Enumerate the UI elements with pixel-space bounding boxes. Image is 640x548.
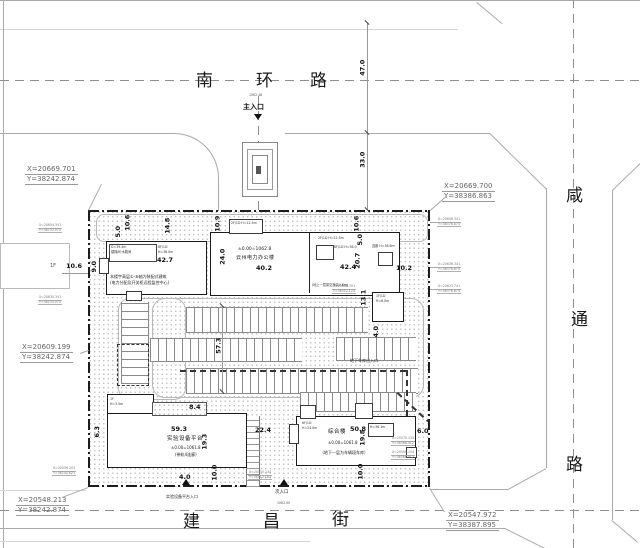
- dim-59-3: 59.3: [171, 426, 187, 433]
- site-plan-drawing: 1F 南 环 路 建 昌 街 咸 通 路 X=20669.7: [0, 0, 640, 548]
- platform-entrance-label: 实验设备平台入口: [166, 495, 198, 500]
- gate-house-glyph: [256, 166, 261, 174]
- basement-outline-h: [180, 370, 408, 372]
- coordinate-y: Y=38313.184: [248, 476, 272, 481]
- secondary-entrance-arrow: [280, 479, 288, 485]
- coordinate-bottom-left: X=20548.213 Y=38242.874: [16, 496, 69, 516]
- complex-protrusion-2: [355, 403, 373, 419]
- coordinate-x: X=20669.701: [25, 165, 78, 175]
- dim-13-1: 13.1: [360, 290, 367, 306]
- coordinate-y: Y=38242.874: [25, 175, 78, 185]
- coordinate-x: X=20669.700: [442, 182, 495, 192]
- coordinate-y: Y=38368.412: [391, 442, 415, 447]
- main-entrance-arrow: [254, 114, 262, 120]
- south-road-char-3: 街: [332, 510, 349, 530]
- office-building-name: 云州电力办公楼: [236, 256, 275, 262]
- west-tag-line2: 楼梯间·水箱间: [111, 251, 131, 255]
- north-east-corner-chamfer: [476, 2, 502, 24]
- micro-coordinate: X=20630.341Y=38233.074: [38, 296, 62, 305]
- east-block-chamfer-bottom: [611, 520, 638, 543]
- west-note-line1: 本楼宇高层①-⑧轴为装配式建筑: [110, 275, 167, 280]
- parking-row-1: [186, 307, 368, 333]
- dim-20-7: 20.7: [354, 253, 361, 269]
- south-block-edge: [0, 541, 310, 542]
- dim-4-0-bottom: 4.0: [179, 474, 191, 481]
- complex-roof-label: H=36.1m: [370, 426, 385, 430]
- dim-8-4: 8.4: [189, 404, 201, 411]
- dim-9-0: 9.0: [91, 261, 98, 273]
- adjacent-building-label: 1F: [50, 264, 56, 270]
- coordinate-y: Y=38387.895: [446, 521, 499, 531]
- east-block-chamfer-top: [612, 163, 640, 191]
- coordinate-x: X=20547.972: [446, 511, 499, 521]
- north-road-char-2: 环: [256, 71, 273, 91]
- micro-coordinate: X=20555.134Y=38313.184: [248, 471, 272, 480]
- micro-coordinate: X=20623.741Y=38376.874: [437, 285, 461, 294]
- dim-5-0-left: 5.0: [115, 226, 122, 238]
- block-corner-chamfer-se: [508, 468, 546, 490]
- adjacent-building-west: [0, 243, 70, 289]
- dim-33-0: 33.0: [359, 152, 366, 168]
- main-office-building: [210, 232, 400, 296]
- west-note-line2: (电力分配及开关柜远程监控中心): [110, 281, 169, 286]
- office-elevation: ±0.00=1062.8: [238, 247, 271, 252]
- coordinate-y: Y=38242.874: [20, 353, 73, 363]
- coordinate-y: Y=38368.412: [391, 456, 415, 461]
- site-boundary-top: [88, 210, 430, 212]
- west-building-notch-bottom: [126, 291, 142, 301]
- dim-line-47-33: [367, 23, 368, 210]
- basement-outline-v: [406, 370, 408, 418]
- platform-elevation: ±0.00=1061.8: [171, 446, 201, 451]
- dim-40-2: 40.2: [256, 265, 272, 272]
- dim-42-7: 42.7: [157, 257, 173, 264]
- south-road-north-curb-west: [0, 490, 86, 491]
- dim-10-0-complex: 10.0: [357, 464, 364, 480]
- south-road-char-2: 昌: [263, 512, 280, 532]
- site-boundary-left: [88, 210, 90, 487]
- office-roof-label: 2F/1D H=12.5m: [231, 222, 257, 226]
- kiosk-label2: H=6.0m: [376, 300, 389, 304]
- micro-coordinate: X=20654.341Y=38233.074: [38, 224, 62, 233]
- complex-building-name: 综合楼: [328, 429, 346, 435]
- platform-floor2: H=3.5m: [110, 403, 123, 407]
- complex-protrusion-1: [300, 405, 316, 419]
- coordinate-top-right: X=20669.700 Y=38386.863: [442, 182, 495, 202]
- platform-building-name: 实验设备平台: [167, 436, 203, 442]
- coordinate-y: Y=38376.874: [437, 223, 461, 228]
- south-road-north-curb: [430, 489, 508, 490]
- site-boundary-right: [428, 210, 430, 487]
- micro-coordinate: X=20636.341Y=38376.874: [437, 263, 461, 272]
- micro-coordinate: X=20556.134Y=38368.412: [391, 451, 415, 460]
- north-block-curb: [285, 133, 490, 134]
- coordinate-y: Y=38242.874: [16, 506, 69, 516]
- dim-22-4: 22.4: [255, 427, 271, 434]
- corridor-box: [378, 252, 393, 266]
- dim-10-6-left: 10.6: [124, 215, 131, 231]
- south-road-south-curb: [0, 528, 505, 529]
- coordinate-bottom-right: X=20547.972 Y=38387.895: [446, 511, 499, 531]
- complex-protrusion-left: [289, 424, 299, 444]
- coordinate-y: Y=38233.074: [38, 301, 62, 306]
- office-roof-label2: 2F/1D H=12.5m: [318, 237, 344, 241]
- complex-elevation: ±0.00=1061.8: [328, 441, 358, 446]
- office-internal-wall: [309, 233, 310, 293]
- coordinate-y: Y=38376.874: [437, 268, 461, 273]
- east-road-char-2: 通: [571, 310, 588, 330]
- east-road-east-curb: [612, 190, 613, 520]
- west-floor-label2: H=36.0m: [158, 251, 173, 255]
- north-road-char-1: 南: [196, 71, 213, 91]
- micro-coordinate: X=20570.134Y=38368.412: [391, 437, 415, 446]
- corridor-label: 连廊 H=36.6m: [372, 245, 395, 249]
- coordinate-y: Y=38244.623: [52, 472, 76, 477]
- office-stair-box: [316, 245, 334, 260]
- micro-coordinate: X=20656.341Y=38376.874: [437, 218, 461, 227]
- west-building-notch-left: [99, 258, 109, 274]
- basement-outline-west-box: [117, 344, 149, 386]
- dim-10-9: 10.9: [214, 216, 221, 232]
- east-road-char-3: 路: [566, 455, 583, 475]
- coordinate-y: Y=38352.124: [332, 290, 356, 295]
- dim-24-0: 24.0: [219, 249, 226, 265]
- secondary-entrance-label: 次入口: [275, 490, 289, 495]
- dim-19-3: 19.3: [201, 434, 208, 450]
- south-block-chamfer: [505, 528, 546, 548]
- coordinate-y: Y=38233.074: [38, 229, 62, 234]
- dim-6-0: 6.0: [417, 428, 429, 435]
- dim-19-8: 19.8: [359, 430, 366, 446]
- dim-10-0-bottom: 10.0: [211, 465, 218, 481]
- dim-line-west: [62, 273, 88, 274]
- main-entrance-label: 主入口: [243, 103, 264, 111]
- secondary-entrance-elevation: 1062.00: [277, 502, 290, 506]
- coordinate-x: X=20548.213: [16, 496, 69, 506]
- office-note: (地上一层架空净高4.6m): [312, 284, 348, 288]
- complex-floor2: H=24.0m: [302, 427, 317, 431]
- south-road-char-1: 建: [183, 512, 200, 532]
- office-stair-label: 8F/1D H=36.0: [334, 246, 357, 250]
- dim-14-8: 14.8: [164, 218, 171, 234]
- coordinate-top-left: X=20669.701 Y=38242.874: [25, 165, 78, 185]
- frame-top-line: [0, 0, 640, 1]
- coordinate-x: X=20609.199: [20, 343, 73, 353]
- dim-10-6-right: 10.6: [353, 216, 360, 232]
- south-road-centerline: [0, 510, 640, 511]
- dim-10-6-west: 10.6: [66, 263, 82, 270]
- garage-entrance-label: 地下车库出入口: [350, 359, 378, 364]
- dim-10-2: 10.2: [396, 265, 412, 272]
- east-road-west-curb: [546, 188, 547, 468]
- dim-5-0-right: 5.0: [357, 234, 364, 246]
- dim-4-0-ramp: 4.0: [373, 326, 380, 338]
- dim-57-3: 57.3: [215, 338, 222, 354]
- main-entrance-elevation: 1062.48: [249, 94, 262, 98]
- dim-6-3: 6.3: [94, 426, 101, 438]
- parking-row-2: [150, 338, 302, 362]
- complex-note: （地下一层为车辆段车库）: [320, 451, 368, 456]
- leader-br: [429, 488, 445, 512]
- micro-coordinate: X=20556.203Y=38244.623: [52, 467, 76, 476]
- coordinate-y: Y=38376.874: [437, 290, 461, 295]
- coordinate-mid-left: X=20609.199 Y=38242.874: [20, 343, 73, 363]
- coordinate-y: Y=38386.863: [442, 192, 495, 202]
- north-road-upper-curb: [0, 29, 458, 30]
- dim-47-0: 47.0: [359, 60, 366, 76]
- block-corner-chamfer-ne: [489, 133, 546, 189]
- north-road-char-3: 路: [310, 71, 327, 91]
- platform-note: (带轨4连廊): [175, 453, 197, 458]
- east-road-char-1: 咸: [566, 186, 583, 206]
